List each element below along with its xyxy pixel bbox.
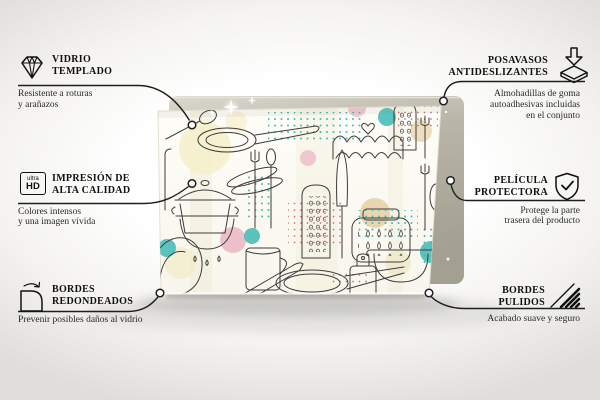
feature-title-line: BORDES	[52, 284, 133, 296]
feature-title-line: ANTIDESLIZANTES	[448, 67, 548, 79]
feature-desc-line: Colores intensos	[18, 207, 95, 218]
feature-title-line: PULIDOS	[498, 297, 545, 309]
callout-dot	[156, 289, 164, 297]
callout-dot	[425, 289, 433, 297]
feature-desc-line: y arañazos	[18, 100, 92, 111]
feature-title-line: PROTECTORA	[475, 187, 548, 199]
feature-title-line: POSAVASOS	[448, 55, 548, 67]
callout-dot	[440, 97, 448, 105]
feature-title-line: BORDES	[498, 285, 545, 297]
feature-desc-line: Resistente a roturas	[18, 89, 92, 100]
feature-desc-pelicula: Protege la parte trasera del producto	[505, 206, 580, 228]
floor-shadow	[85, 291, 515, 333]
feature-desc-line: Prevenir posibles daños al vidrio	[18, 315, 143, 326]
feature-title-line: TEMPLADO	[52, 66, 112, 78]
feature-title-line: REDONDEADOS	[52, 296, 133, 308]
feature-title-line: ALTA CALIDAD	[52, 185, 130, 197]
feature-desc-line: y una imagen vívida	[18, 217, 95, 228]
feature-title-vidrio-templado: VIDRIO TEMPLADO	[52, 54, 112, 77]
callout-dot	[188, 121, 196, 129]
feature-title-line: VIDRIO	[52, 54, 112, 66]
feature-title-bordes-redondeados: BORDES REDONDEADOS	[52, 284, 133, 307]
feature-desc-posavasos: Almohadillas de goma autoadhesivas inclu…	[490, 89, 580, 121]
mount-dot	[444, 110, 448, 114]
polished-edge-icon	[549, 282, 581, 309]
feature-desc-line: Acabado suave y seguro	[487, 314, 580, 325]
feature-title-bordes-pulidos: BORDES PULIDOS	[498, 285, 545, 308]
feature-desc-bordes-pulidos: Acabado suave y seguro	[487, 314, 580, 325]
feature-desc-line: en el conjunto	[490, 111, 580, 122]
feature-desc-line: trasera del producto	[505, 216, 580, 227]
shield-check-icon	[552, 171, 582, 201]
ultra-hd-icon: ultra HD	[20, 172, 46, 195]
ultra-hd-icon-bottom-text: HD	[26, 182, 40, 192]
non-slip-pad-icon	[558, 46, 590, 84]
feature-desc-line: Protege la parte	[505, 206, 580, 217]
feature-desc-line: Almohadillas de goma	[490, 89, 580, 100]
feature-title-posavasos: POSAVASOS ANTIDESLIZANTES	[448, 55, 548, 78]
callout-dot	[447, 177, 455, 185]
diamond-icon	[18, 53, 46, 81]
rounded-corner-icon	[16, 280, 46, 312]
feature-desc-bordes-redondeados: Prevenir posibles daños al vidrio	[18, 315, 143, 326]
feature-desc-line: autoadhesivas incluidas	[490, 100, 580, 111]
feature-desc-vidrio-templado: Resistente a roturas y arañazos	[18, 89, 92, 111]
mount-dot	[446, 257, 450, 261]
feature-desc-impresion: Colores intensos y una imagen vívida	[18, 207, 95, 229]
callout-dot	[188, 180, 196, 188]
feature-title-impresion: IMPRESIÓN DE ALTA CALIDAD	[52, 173, 130, 196]
feature-title-line: IMPRESIÓN DE	[52, 173, 130, 185]
feature-title-pelicula: PELÍCULA PROTECTORA	[475, 175, 548, 198]
feature-title-line: PELÍCULA	[475, 175, 548, 187]
